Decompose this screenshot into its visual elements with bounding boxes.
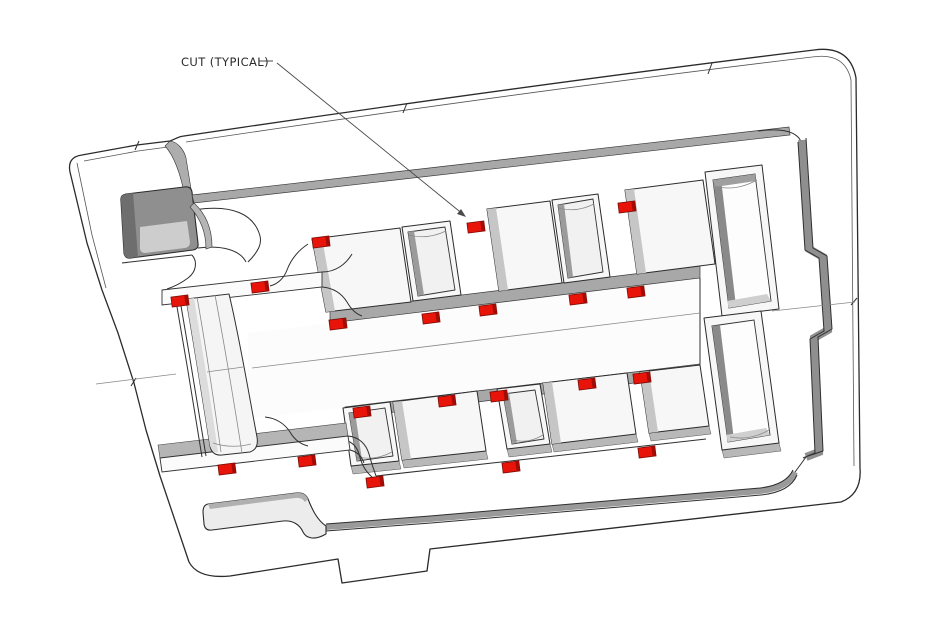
left-thickness-line	[77, 163, 106, 288]
cut-mark	[618, 201, 636, 213]
hook-channel-end	[248, 236, 261, 262]
cut-mark	[298, 455, 316, 467]
cut-mark	[578, 378, 596, 390]
hook-thickness-line	[84, 147, 168, 161]
window-right-wall	[802, 140, 828, 457]
seam-right	[772, 302, 855, 311]
cut-mark	[502, 461, 520, 473]
cut-mark	[353, 406, 371, 418]
cut-mark	[627, 286, 645, 298]
cut-annotation-label: CUT (TYPICAL)	[181, 55, 269, 69]
cut-mark	[312, 236, 330, 248]
seam-tick-top-right	[708, 63, 712, 74]
cad-viewport: CUT (TYPICAL)	[0, 0, 947, 625]
leader-line	[277, 63, 464, 215]
cut-mark	[251, 281, 269, 293]
hook-arm-curve	[167, 255, 195, 289]
top-left-hook	[121, 141, 261, 289]
cad-screenshot: CUT (TYPICAL)	[0, 0, 947, 625]
cut-mark	[638, 446, 656, 458]
hook-channel-lower	[198, 247, 246, 262]
seam-left	[96, 374, 176, 384]
cut-mark	[479, 304, 497, 316]
cut-mark	[171, 295, 189, 307]
cut-mark	[366, 476, 384, 488]
cut-mark	[218, 463, 236, 475]
channel-right-join	[795, 457, 806, 472]
cut-mark	[633, 372, 651, 384]
seam-tick-right	[851, 298, 857, 305]
cut-mark	[569, 293, 587, 305]
cut-mark	[422, 312, 440, 324]
bottom-left-hook	[203, 493, 326, 538]
cut-mark	[329, 318, 347, 330]
cut-mark	[490, 390, 508, 402]
cut-mark	[438, 395, 456, 407]
cut-mark	[467, 221, 485, 233]
